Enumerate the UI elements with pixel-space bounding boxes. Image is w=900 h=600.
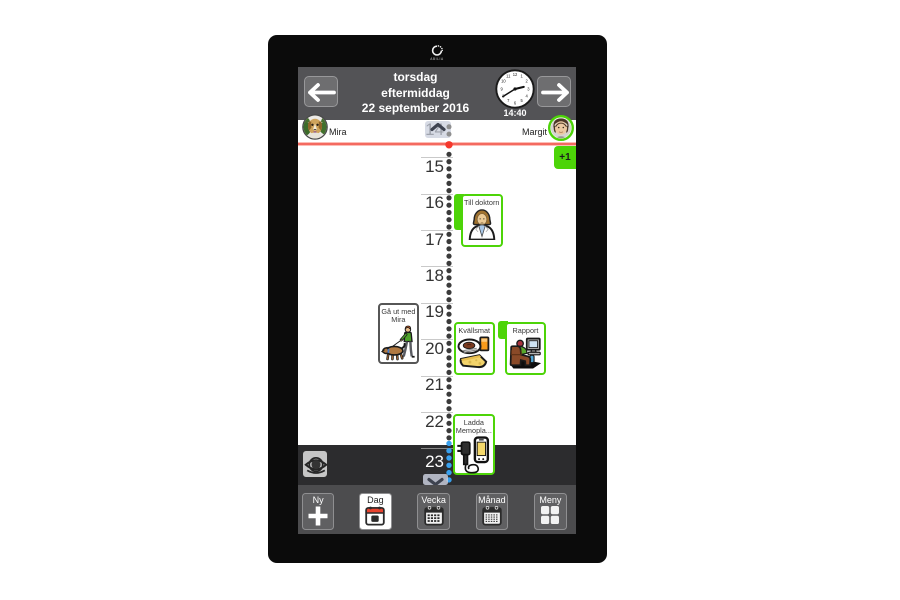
svg-text:12: 12 <box>513 71 518 76</box>
svg-text:ABILIA: ABILIA <box>430 57 444 61</box>
svg-text:10: 10 <box>501 78 506 83</box>
svg-text:11: 11 <box>506 73 511 78</box>
